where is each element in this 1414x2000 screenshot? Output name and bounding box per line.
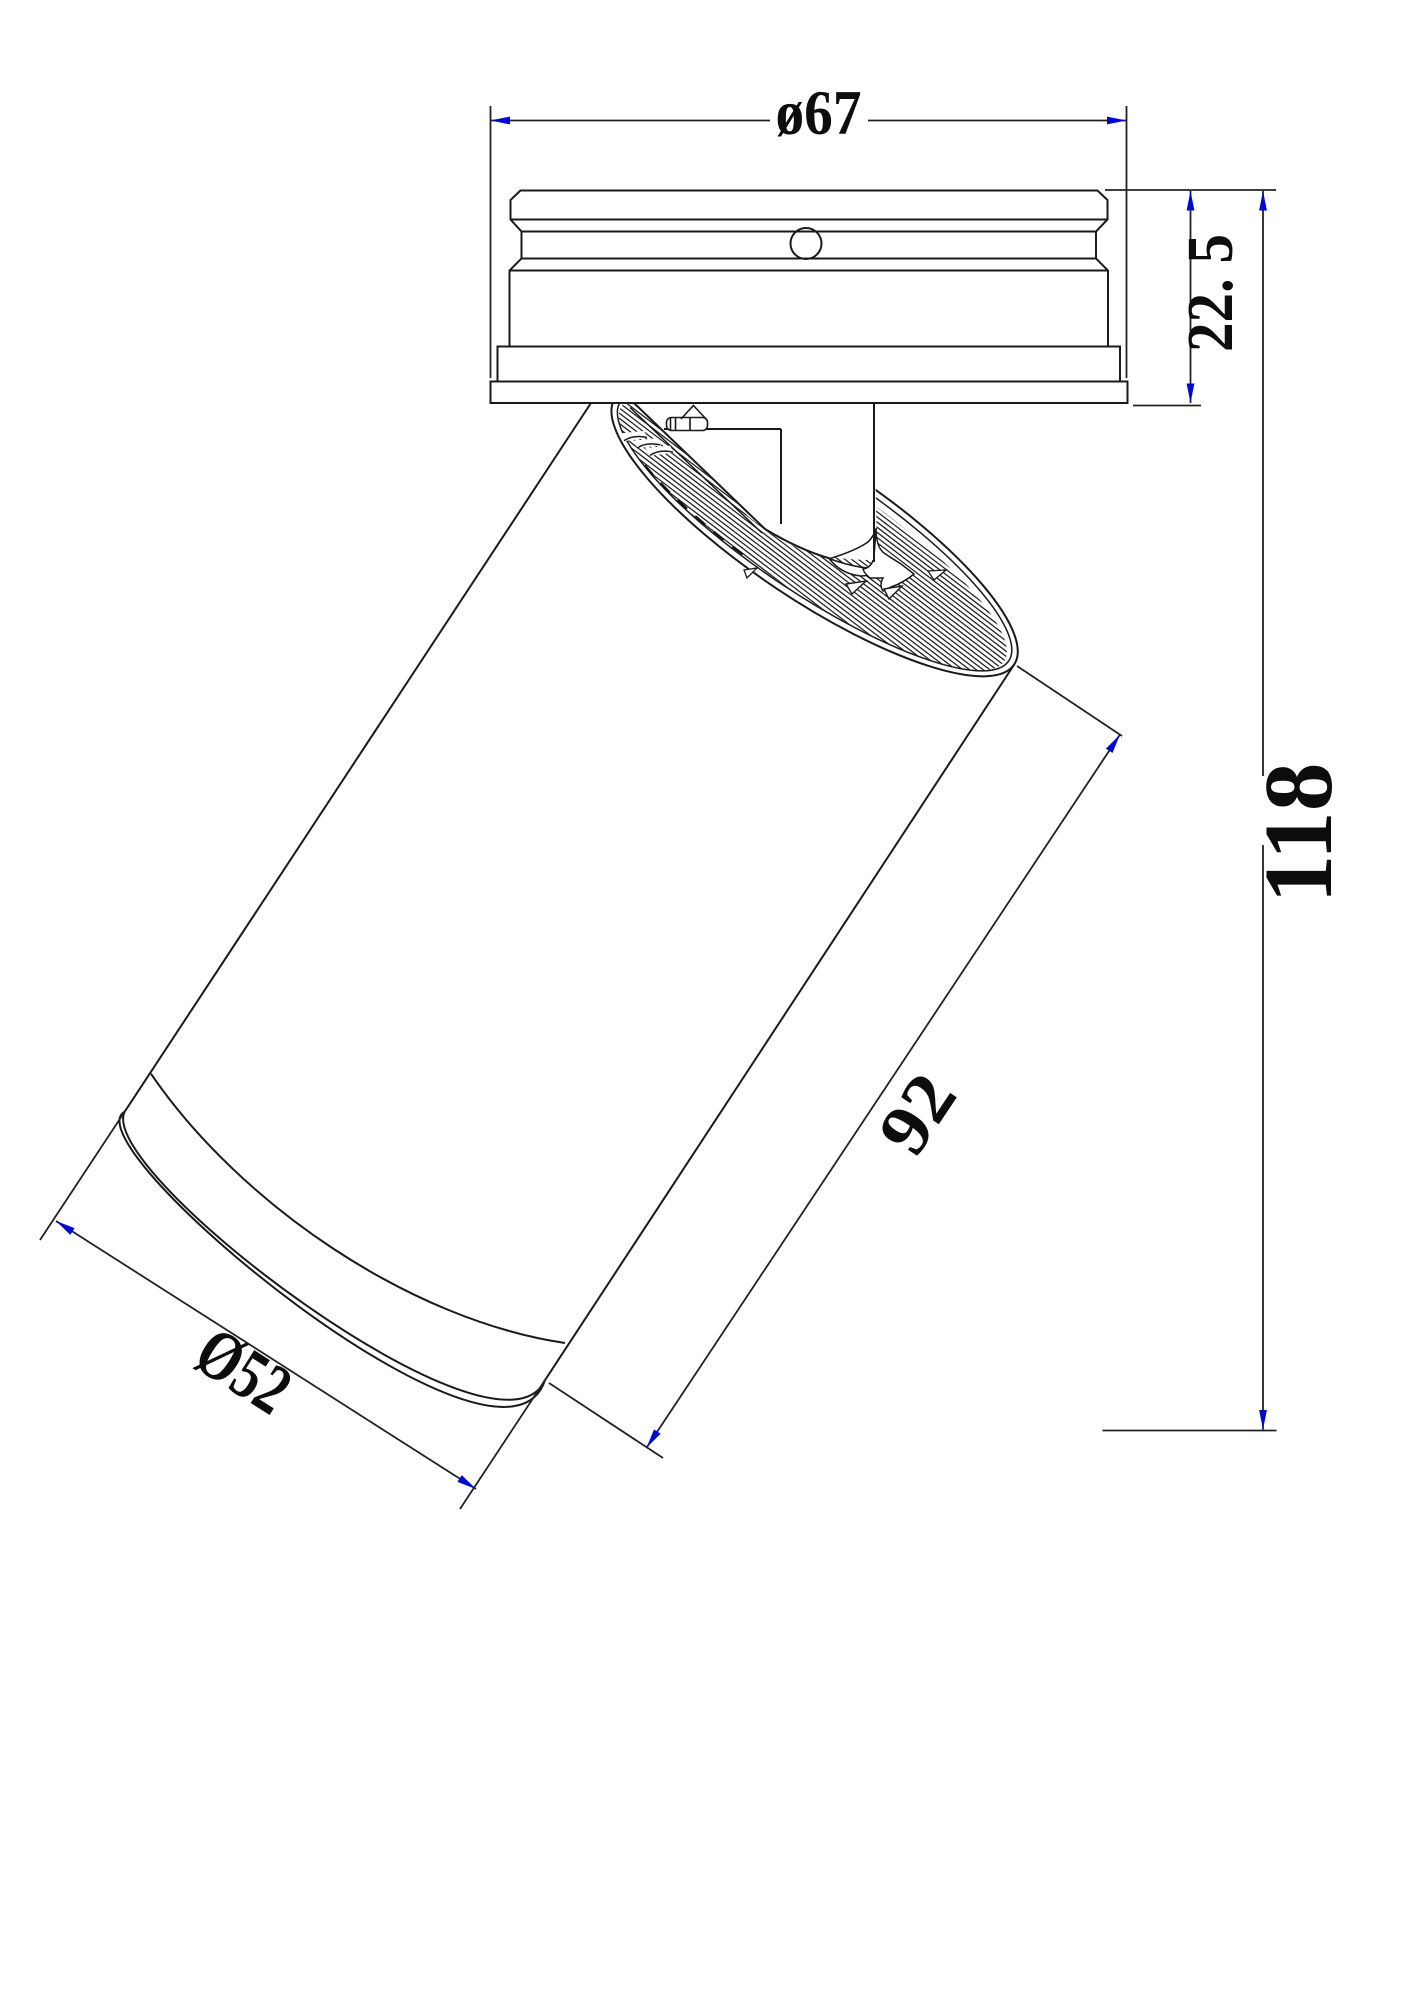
svg-text:22. 5: 22. 5 bbox=[1174, 234, 1247, 352]
svg-text:118: 118 bbox=[1245, 763, 1353, 904]
svg-text:ø67: ø67 bbox=[776, 78, 862, 148]
